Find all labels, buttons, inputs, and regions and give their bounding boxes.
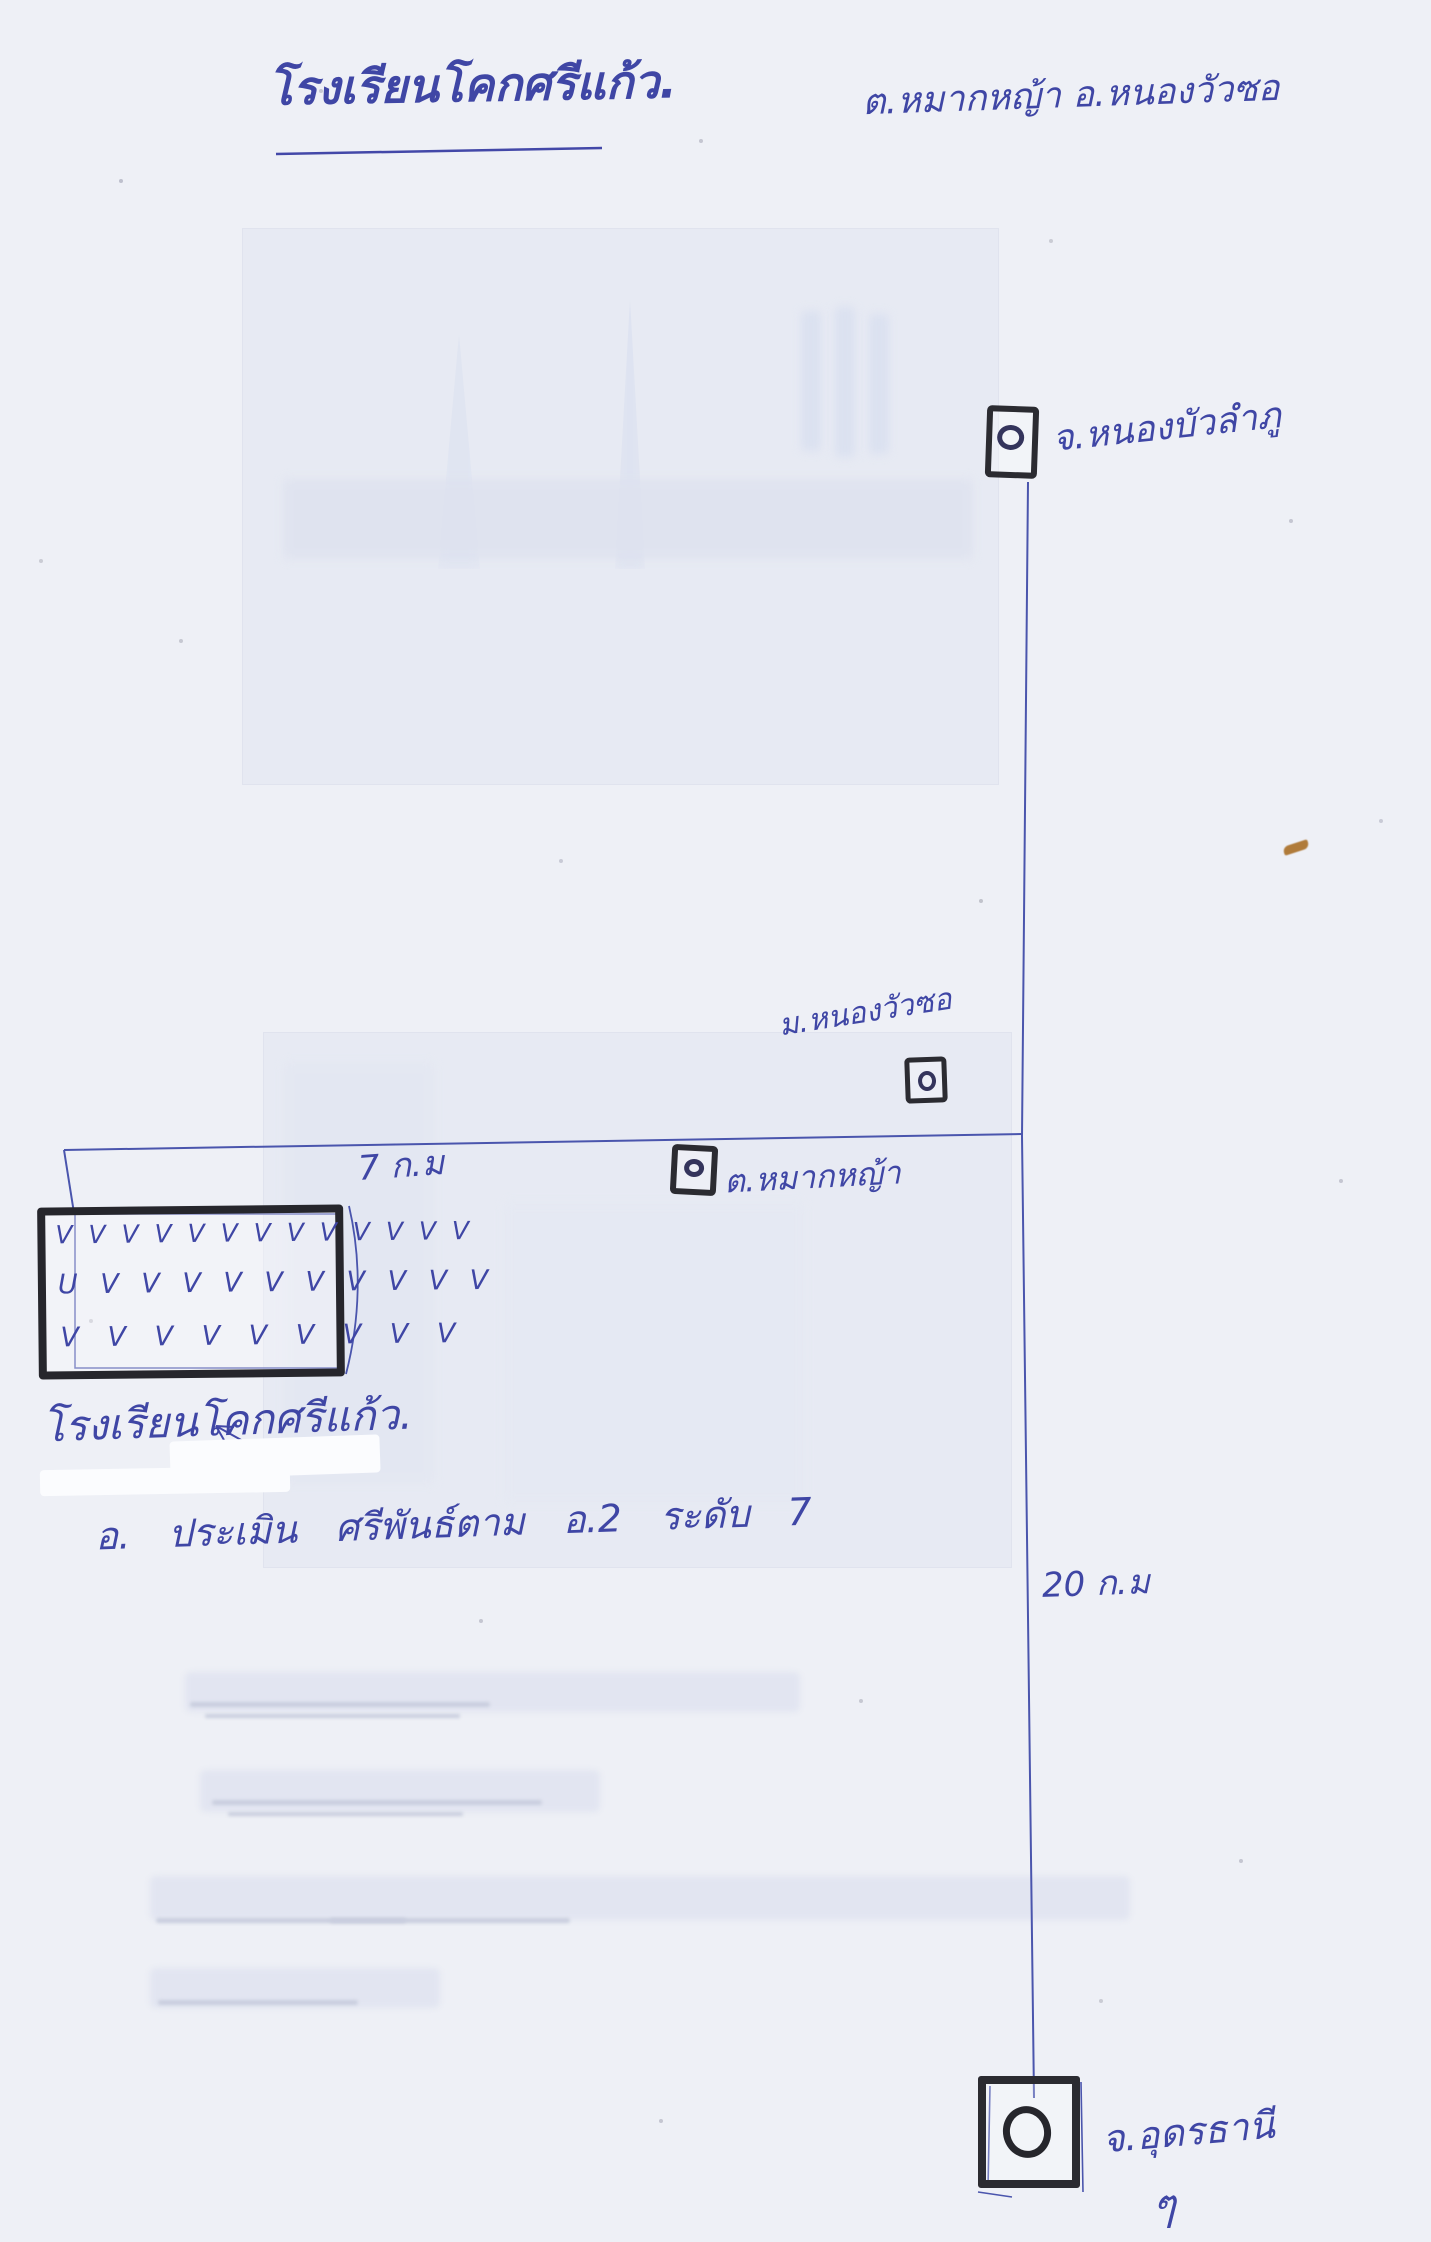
school-building-icon: V V V V V V V V V V V V V U V V V V V V …: [37, 1204, 345, 1379]
landmark-box-udon-thani-icon: [978, 2076, 1080, 2188]
correction-fluid-patch: [40, 1466, 290, 1496]
landmark-circle-icon: [684, 1158, 705, 1177]
pen-lines-layer: [0, 0, 1431, 2242]
landmark-box-mak-ya-icon: [670, 1144, 719, 1196]
landmark-circle-icon: [998, 2102, 1056, 2163]
road-horizontal-line: [64, 1134, 1022, 1150]
road-vertical-line: [1022, 482, 1034, 2098]
landmark-circle-icon: [918, 1071, 937, 1092]
school-hatch-row: V V V V V V V V V: [60, 1319, 465, 1353]
distance-label-7km: 7 ก.ม: [357, 1145, 446, 1188]
landmark-box-nong-bua-lamphu-icon: [985, 405, 1039, 479]
scanned-hand-drawn-map: โรงเรียนโคกศรีแก้ว. ต.หมากหญ้า อ.หนองวัว…: [0, 0, 1431, 2242]
landmark-circle-icon: [997, 424, 1025, 450]
school-hatch-row: V V V V V V V V V V V V V: [55, 1217, 473, 1249]
landmark-box-nong-wua-so-icon: [904, 1056, 948, 1103]
title-underline: [276, 148, 602, 154]
school-hatch-row: U V V V V V V V V V V: [58, 1266, 496, 1300]
label-udon-thani-repeat-mark: ๆ: [1152, 2182, 1176, 2230]
distance-label-20km: 20 ก.ม: [1041, 1564, 1150, 1605]
road-left-tick: [64, 1150, 74, 1213]
map-title-school: โรงเรียนโคกศรีแก้ว.: [268, 56, 678, 114]
